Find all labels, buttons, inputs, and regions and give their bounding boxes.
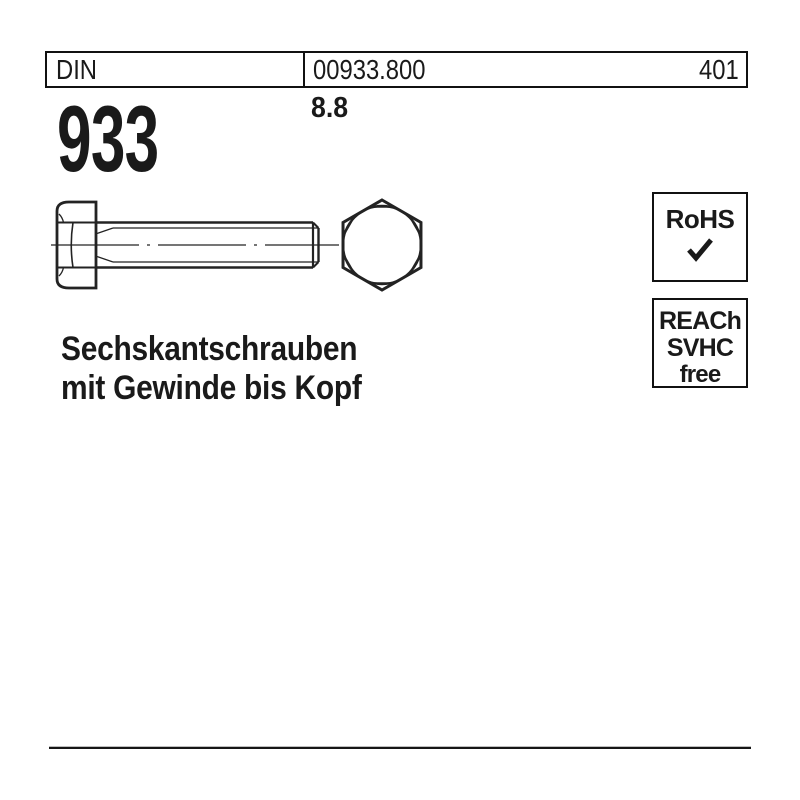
strength-class: 8.8 [311,94,351,123]
reach-line1: REACh [659,308,741,335]
bolt-head-view [343,200,421,290]
header-cell-article: 00933.800 401 [305,53,746,86]
rohs-label: RoHS [666,205,735,233]
header-table: DIN 00933.800 401 [45,51,748,88]
din-number: 933 [57,92,211,186]
bolt-technical-drawing [45,190,445,315]
reach-line2: SVHC [667,335,733,362]
reach-line3: free [680,362,721,388]
rohs-badge: RoHS [652,192,748,282]
standard-label: DIN [56,53,97,86]
product-title: Sechskantschrauben mit Gewinde bis Kopf [61,330,403,408]
product-title-line2: mit Gewinde bis Kopf [61,369,362,408]
footer-divider [49,746,751,749]
product-title-line1: Sechskantschrauben [61,330,362,369]
header-cell-standard: DIN [47,53,305,86]
page-number: 401 [699,53,739,86]
article-number: 00933.800 [313,53,426,86]
catalog-page: DIN 00933.800 401 933 8.8 [0,0,800,800]
check-icon [683,237,717,263]
reach-badge: REACh SVHC free [652,298,748,388]
